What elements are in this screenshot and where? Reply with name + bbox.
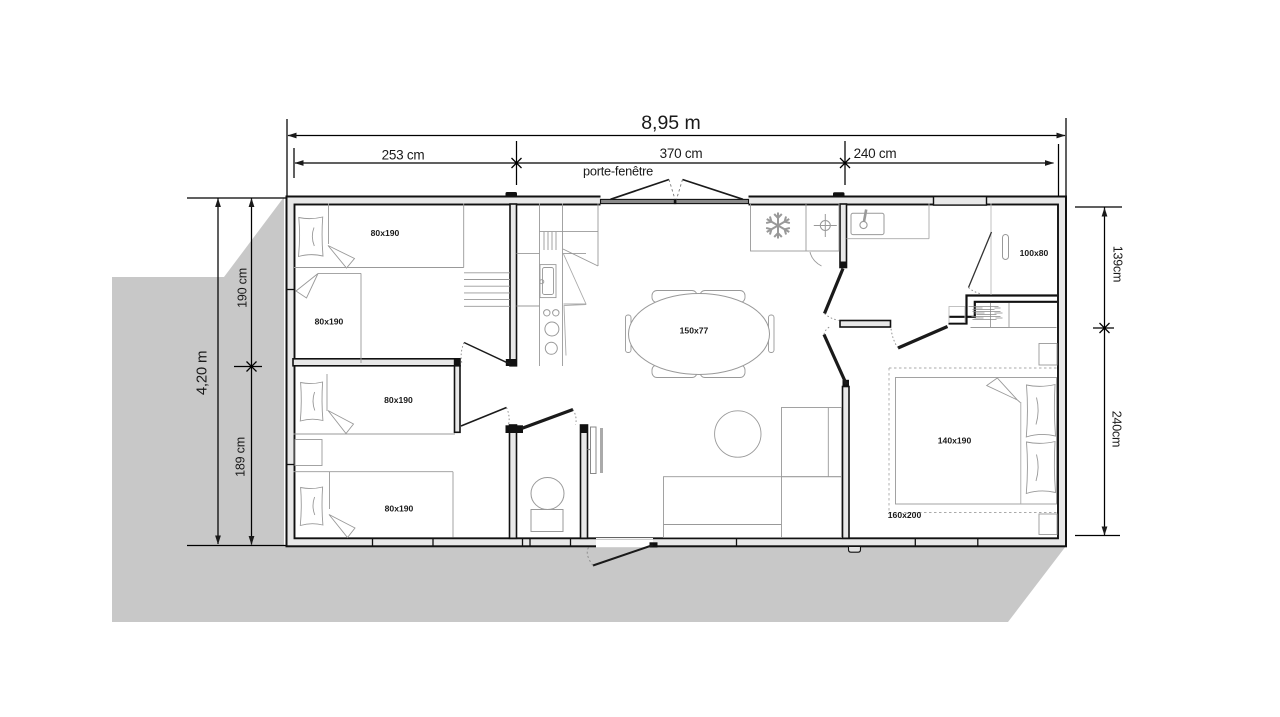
svg-text:80x190: 80x190 [385,504,414,514]
svg-text:240 cm: 240 cm [854,146,897,161]
svg-text:80x190: 80x190 [384,395,413,405]
svg-text:150x77: 150x77 [680,326,709,336]
svg-text:240cm: 240cm [1110,411,1124,448]
svg-text:190 cm: 190 cm [236,268,250,308]
svg-text:80x190: 80x190 [371,228,400,238]
svg-text:80x190: 80x190 [315,317,344,327]
svg-text:140x190: 140x190 [938,436,972,446]
svg-text:160x200: 160x200 [888,510,922,520]
svg-text:139cm: 139cm [1111,246,1125,283]
svg-text:370 cm: 370 cm [660,146,703,161]
svg-text:4,20 m: 4,20 m [194,351,211,395]
svg-text:porte-fenêtre: porte-fenêtre [583,164,653,179]
svg-text:189 cm: 189 cm [234,437,248,477]
svg-text:8,95 m: 8,95 m [641,112,701,134]
svg-text:253 cm: 253 cm [382,148,425,163]
svg-text:100x80: 100x80 [1020,248,1049,258]
